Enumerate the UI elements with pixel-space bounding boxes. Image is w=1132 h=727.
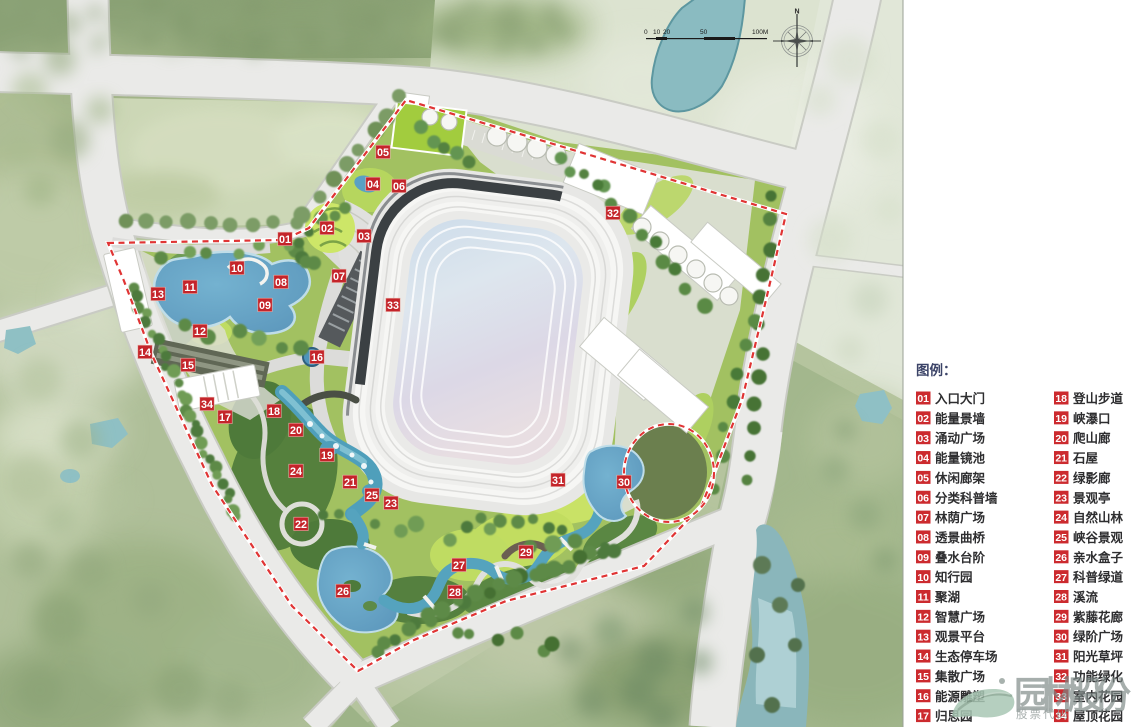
svg-text:登山步道: 登山步道 <box>1072 391 1124 406</box>
svg-text:14: 14 <box>139 347 151 359</box>
svg-text:13: 13 <box>152 289 164 301</box>
svg-text:31: 31 <box>1055 651 1067 663</box>
svg-text:06: 06 <box>393 181 405 193</box>
svg-text:15: 15 <box>182 360 194 372</box>
svg-text:50: 50 <box>700 29 708 36</box>
svg-text:26: 26 <box>1055 552 1067 564</box>
svg-text:涌动广场: 涌动广场 <box>935 431 985 446</box>
svg-text:18: 18 <box>268 406 280 418</box>
svg-text:亲水盒子: 亲水盒子 <box>1073 550 1124 565</box>
svg-text:26: 26 <box>337 586 349 598</box>
svg-text:09: 09 <box>917 552 929 564</box>
svg-text:0: 0 <box>644 29 648 36</box>
svg-text:32: 32 <box>607 208 619 220</box>
svg-text:21: 21 <box>344 477 356 489</box>
svg-text:20: 20 <box>663 29 671 36</box>
svg-text:集散广场: 集散广场 <box>934 669 985 684</box>
svg-text:07: 07 <box>333 271 345 283</box>
svg-text:生态停车场: 生态停车场 <box>935 649 998 664</box>
svg-text:28: 28 <box>449 587 461 599</box>
svg-text:观景平台: 观景平台 <box>935 629 985 644</box>
svg-text:02: 02 <box>917 413 929 425</box>
svg-text:30: 30 <box>1055 631 1067 643</box>
svg-text:08: 08 <box>917 532 929 544</box>
svg-text:知行园: 知行园 <box>934 570 973 585</box>
svg-text:17: 17 <box>917 711 929 723</box>
svg-text:12: 12 <box>917 611 929 623</box>
svg-text:林荫广场: 林荫广场 <box>935 510 985 525</box>
svg-text:绿影廊: 绿影廊 <box>1073 470 1111 485</box>
svg-text:分类科普墙: 分类科普墙 <box>935 490 998 505</box>
svg-text:19: 19 <box>321 450 333 462</box>
svg-text:24: 24 <box>290 466 302 478</box>
svg-text:24: 24 <box>1055 512 1067 524</box>
svg-text:景观亭: 景观亭 <box>1073 490 1111 505</box>
svg-text:31: 31 <box>552 475 564 487</box>
svg-text:11: 11 <box>918 592 929 604</box>
svg-text:04: 04 <box>917 453 929 465</box>
svg-text:25: 25 <box>1055 532 1067 544</box>
svg-text:图例：: 图例： <box>916 362 957 378</box>
svg-text:07: 07 <box>917 512 929 524</box>
svg-text:22: 22 <box>1055 473 1067 485</box>
svg-text:13: 13 <box>917 631 929 643</box>
svg-text:27: 27 <box>1055 572 1067 584</box>
svg-text:05: 05 <box>917 473 929 485</box>
svg-text:10: 10 <box>653 29 661 36</box>
svg-text:智慧广场: 智慧广场 <box>934 609 985 624</box>
svg-text:03: 03 <box>917 433 929 445</box>
svg-text:叠水台阶: 叠水台阶 <box>935 550 986 565</box>
svg-text:溪流: 溪流 <box>1073 590 1099 605</box>
svg-text:06: 06 <box>917 492 929 504</box>
svg-text:25: 25 <box>366 490 378 502</box>
svg-text:12: 12 <box>194 326 206 338</box>
svg-text:峡瀑口: 峡瀑口 <box>1073 411 1111 426</box>
svg-text:28: 28 <box>1055 592 1067 604</box>
svg-text:峡谷景观: 峡谷景观 <box>1073 530 1124 545</box>
svg-text:04: 04 <box>367 179 379 191</box>
svg-text:29: 29 <box>1055 611 1067 623</box>
svg-text:16: 16 <box>917 691 929 703</box>
svg-text:18: 18 <box>1055 393 1067 405</box>
svg-text:20: 20 <box>290 425 302 437</box>
svg-text:01: 01 <box>917 393 929 405</box>
svg-text:01: 01 <box>279 234 291 246</box>
svg-text:能量景墙: 能量景墙 <box>935 411 986 426</box>
svg-text:N: N <box>795 9 800 16</box>
svg-text:17: 17 <box>219 412 231 424</box>
svg-text:21: 21 <box>1055 453 1067 465</box>
svg-text:科普绿道: 科普绿道 <box>1073 570 1124 585</box>
svg-text:23: 23 <box>1055 492 1067 504</box>
svg-text:休闲廊架: 休闲廊架 <box>934 470 986 485</box>
svg-text:聚湖: 聚湖 <box>934 590 960 605</box>
svg-text:紫藤花廊: 紫藤花廊 <box>1073 609 1124 624</box>
svg-text:透景曲桥: 透景曲桥 <box>935 530 986 545</box>
svg-text:入口大门: 入口大门 <box>935 391 985 406</box>
svg-text:02: 02 <box>321 223 333 235</box>
svg-text:绿阶广场: 绿阶广场 <box>1073 629 1123 644</box>
svg-text:能量镜池: 能量镜池 <box>935 451 986 466</box>
svg-text:阳光草坪: 阳光草坪 <box>1073 649 1124 664</box>
svg-text:16: 16 <box>311 352 323 364</box>
svg-text:03: 03 <box>358 231 370 243</box>
svg-text:34: 34 <box>201 399 213 411</box>
svg-text:30: 30 <box>618 477 630 489</box>
svg-text:自然山林: 自然山林 <box>1073 510 1124 525</box>
svg-text:33: 33 <box>387 300 399 312</box>
svg-text:29: 29 <box>520 547 532 559</box>
svg-text:08: 08 <box>275 277 287 289</box>
svg-text:20: 20 <box>1055 433 1067 445</box>
svg-text:11: 11 <box>184 282 195 294</box>
svg-text:15: 15 <box>917 671 929 683</box>
svg-text:10: 10 <box>917 572 929 584</box>
svg-text:19: 19 <box>1055 413 1067 425</box>
svg-text:石屋: 石屋 <box>1072 451 1099 466</box>
svg-text:爬山廊: 爬山廊 <box>1072 431 1111 446</box>
svg-text:05: 05 <box>377 147 389 159</box>
svg-text:22: 22 <box>295 519 307 531</box>
svg-text:23: 23 <box>385 498 397 510</box>
svg-text:09: 09 <box>259 300 271 312</box>
svg-text:100M: 100M <box>752 29 768 36</box>
svg-text:27: 27 <box>453 560 465 572</box>
svg-text:14: 14 <box>917 651 929 663</box>
svg-text:10: 10 <box>231 263 243 275</box>
